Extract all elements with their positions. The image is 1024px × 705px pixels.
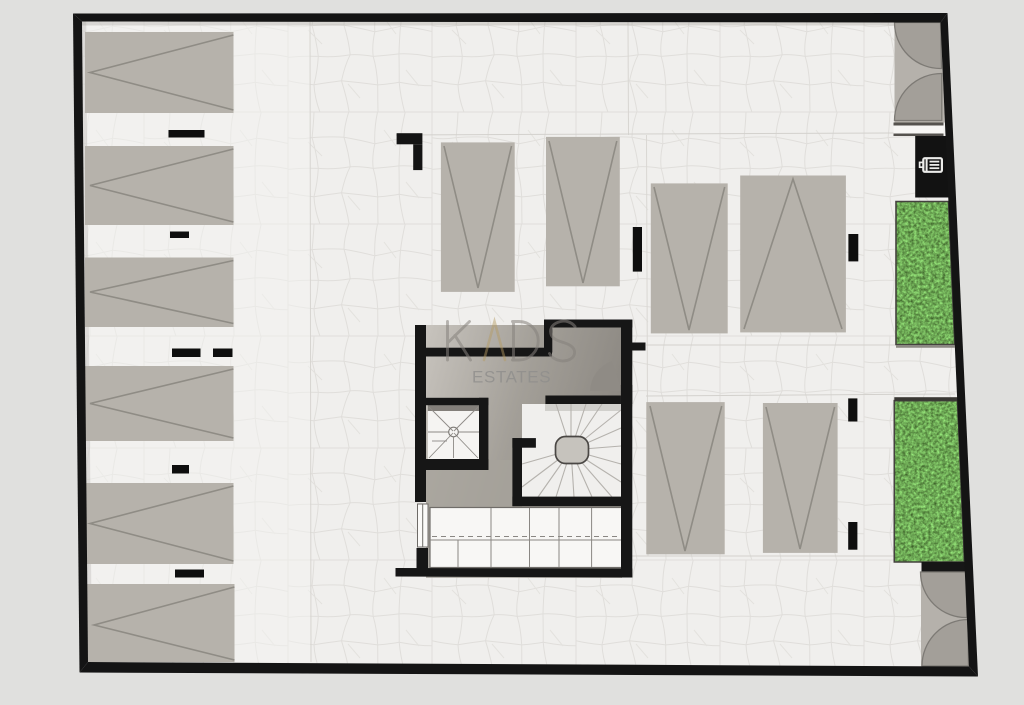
svg-text:ESTATES: ESTATES	[472, 368, 551, 387]
